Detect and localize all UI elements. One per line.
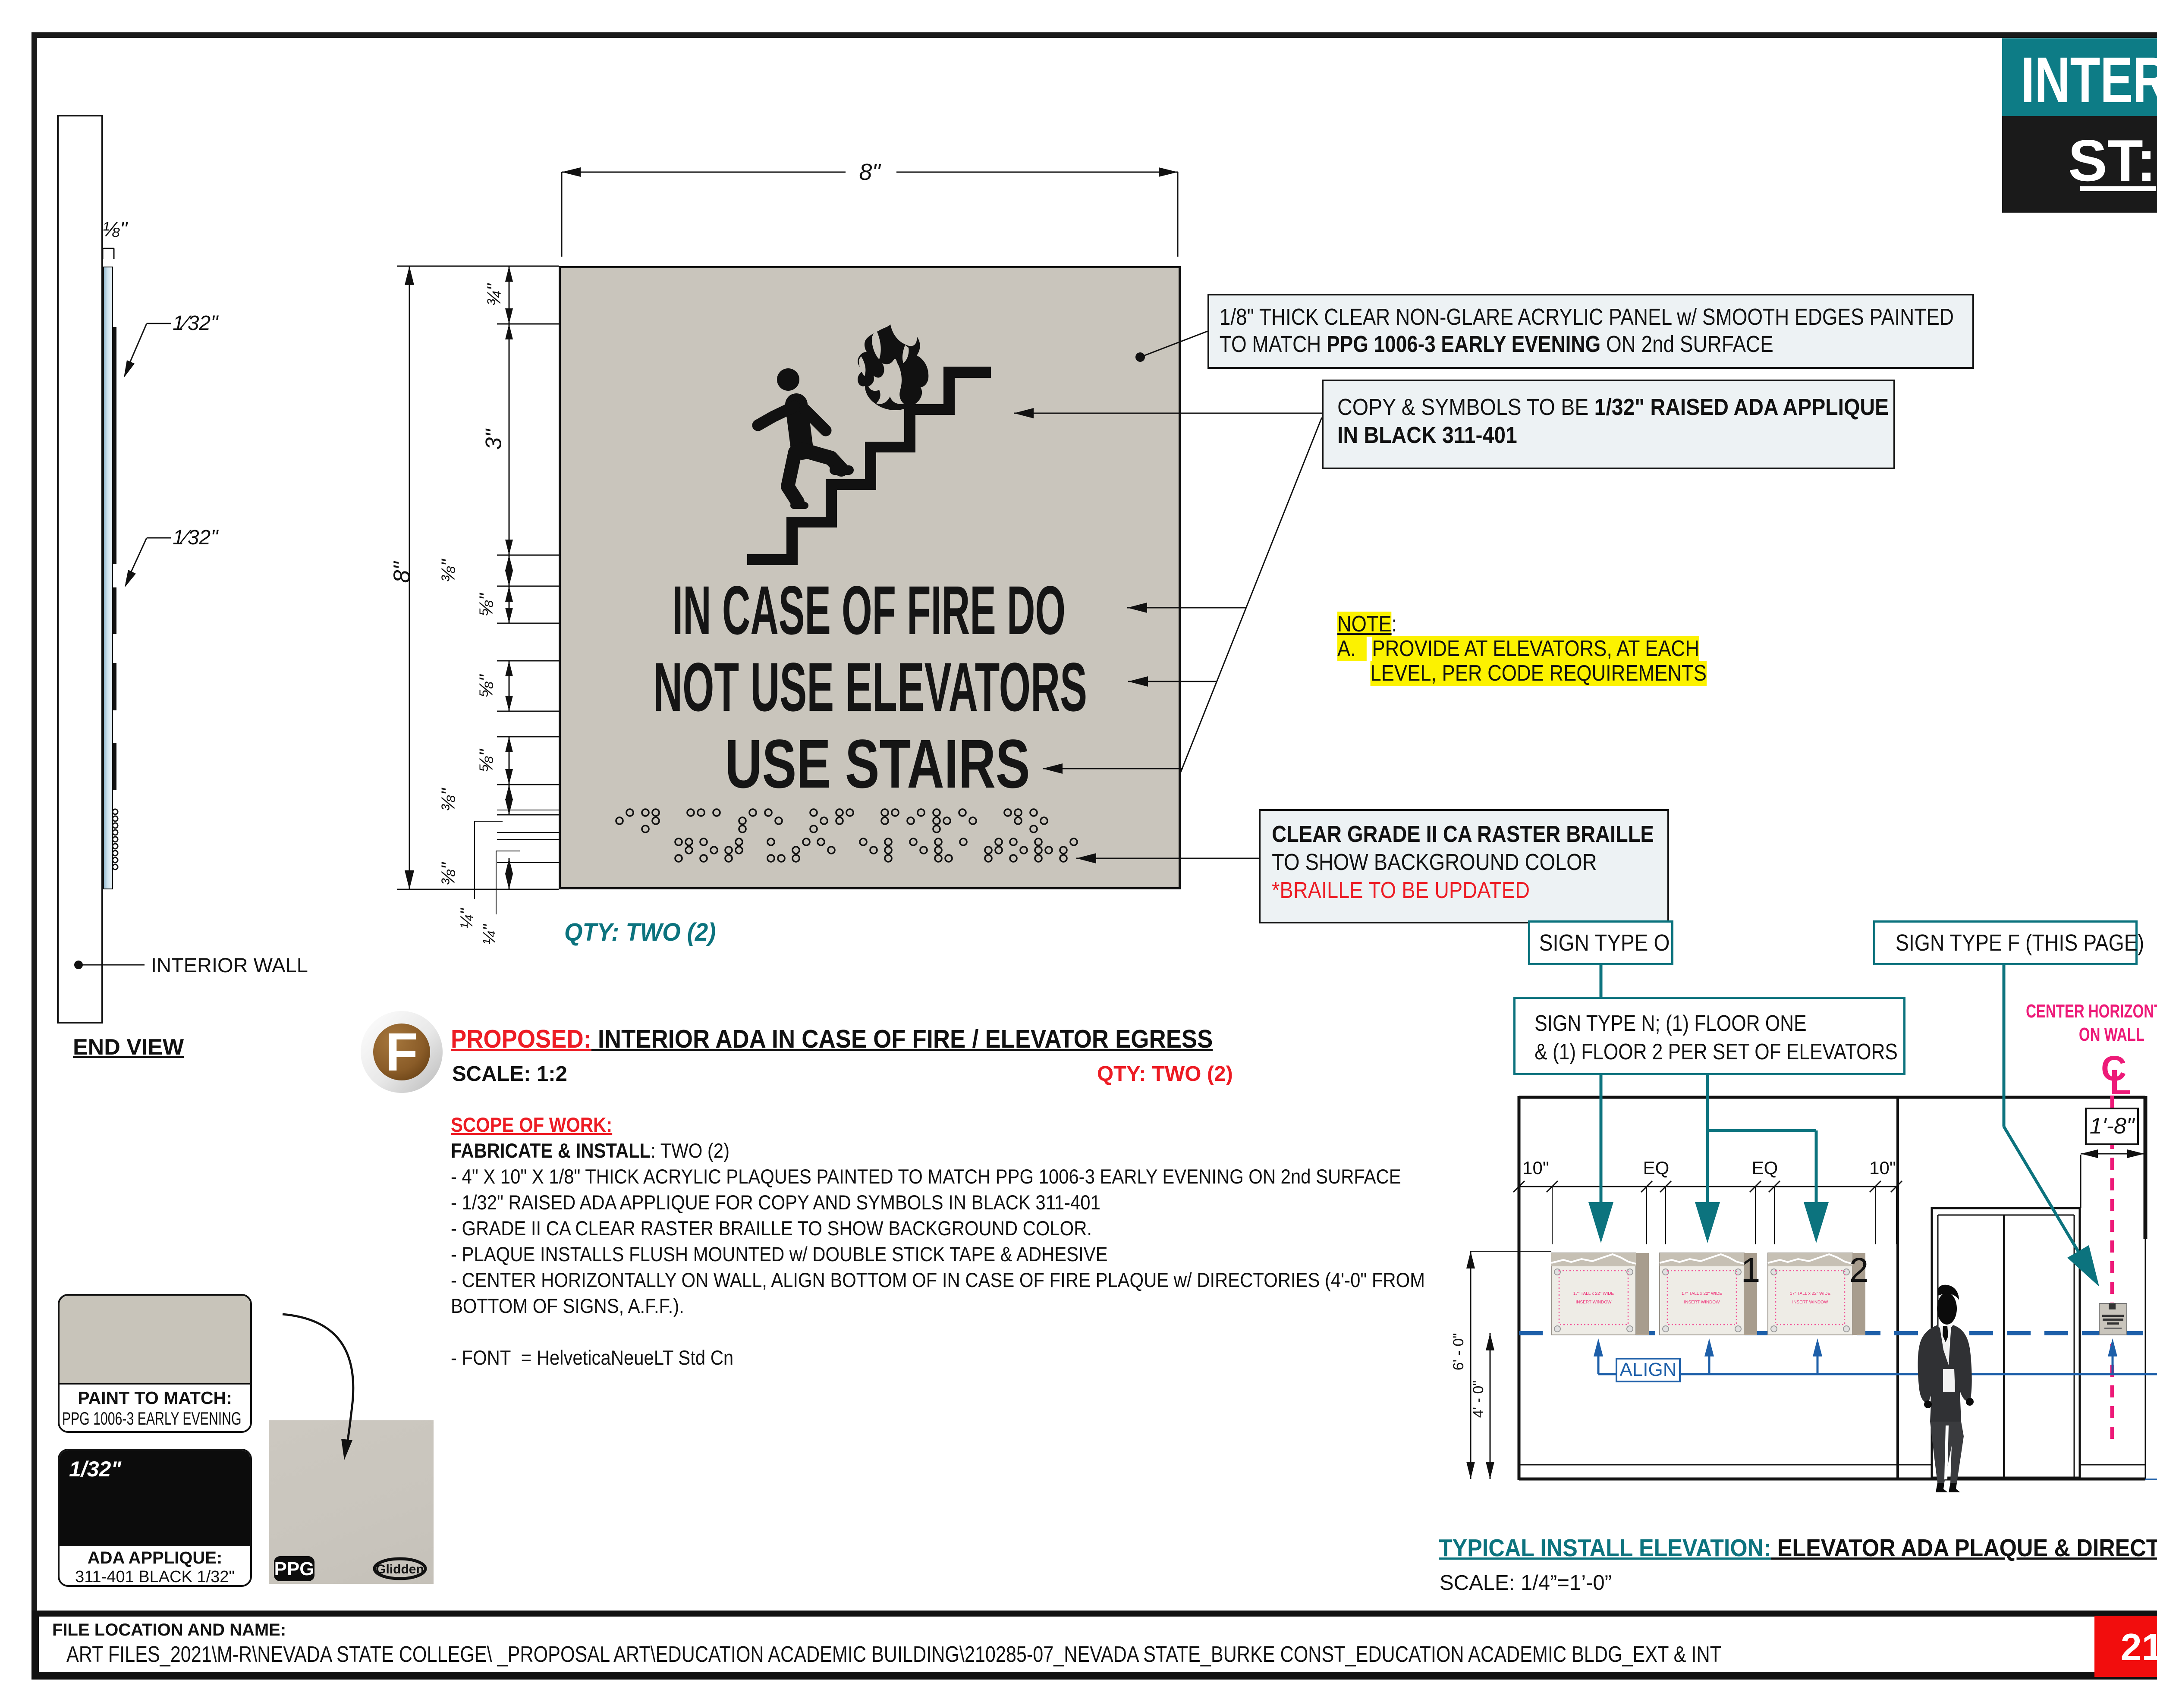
svg-text:Glidden: Glidden: [376, 1562, 424, 1576]
svg-text:⅝": ⅝": [476, 748, 497, 772]
svg-text:PPG: PPG: [274, 1558, 314, 1579]
svg-text:2: 2: [1849, 1251, 1869, 1289]
svg-text:EQ: EQ: [1643, 1158, 1670, 1178]
svg-text:⅜": ⅜": [438, 787, 459, 811]
svg-text:17" TALL x 22" WIDE: 17" TALL x 22" WIDE: [1682, 1291, 1723, 1296]
svg-text:NOT USE ELEVATORS: NOT USE ELEVATORS: [653, 648, 1087, 725]
svg-text:IN CASE OF FIRE DO: IN CASE OF FIRE DO: [672, 571, 1066, 649]
svg-text:3": 3": [481, 428, 506, 450]
svg-text:⅜": ⅜": [438, 861, 459, 885]
svg-text:INSERT WINDOW: INSERT WINDOW: [1792, 1300, 1829, 1305]
svg-text:F: F: [385, 1023, 418, 1082]
svg-text:USE STAIRS: USE STAIRS: [725, 725, 1030, 802]
svg-text:10": 10": [1869, 1158, 1896, 1178]
svg-text:INSERT WINDOW: INSERT WINDOW: [1576, 1300, 1612, 1305]
svg-text:8": 8": [859, 159, 881, 185]
svg-text:ST: H: ST: H: [2068, 128, 2157, 193]
svg-text:⅜": ⅜": [438, 558, 459, 582]
svg-text:1⁄32": 1⁄32": [173, 526, 219, 549]
svg-text:1: 1: [1741, 1251, 1761, 1289]
svg-text:17" TALL x 22" WIDE: 17" TALL x 22" WIDE: [1790, 1291, 1831, 1296]
svg-text:¼": ¼": [480, 923, 499, 945]
svg-text:4' - 0": 4' - 0": [1470, 1381, 1487, 1418]
svg-text:10": 10": [1522, 1158, 1549, 1178]
svg-text:8": 8": [389, 561, 415, 583]
svg-text:1⁄32": 1⁄32": [173, 312, 219, 335]
svg-text:¾": ¾": [484, 283, 505, 306]
svg-text:INSERT WINDOW: INSERT WINDOW: [1684, 1300, 1720, 1305]
svg-text:⅝": ⅝": [476, 592, 497, 616]
svg-text:17" TALL x 22" WIDE: 17" TALL x 22" WIDE: [1573, 1291, 1614, 1296]
svg-text:INTERIOR: INTERIOR: [2021, 44, 2157, 116]
svg-text:EQ: EQ: [1752, 1158, 1778, 1178]
svg-text:⅝": ⅝": [476, 674, 497, 697]
svg-text:¼": ¼": [457, 907, 476, 929]
svg-text:6' - 0": 6' - 0": [1450, 1333, 1467, 1371]
svg-text:⅛": ⅛": [103, 218, 128, 241]
